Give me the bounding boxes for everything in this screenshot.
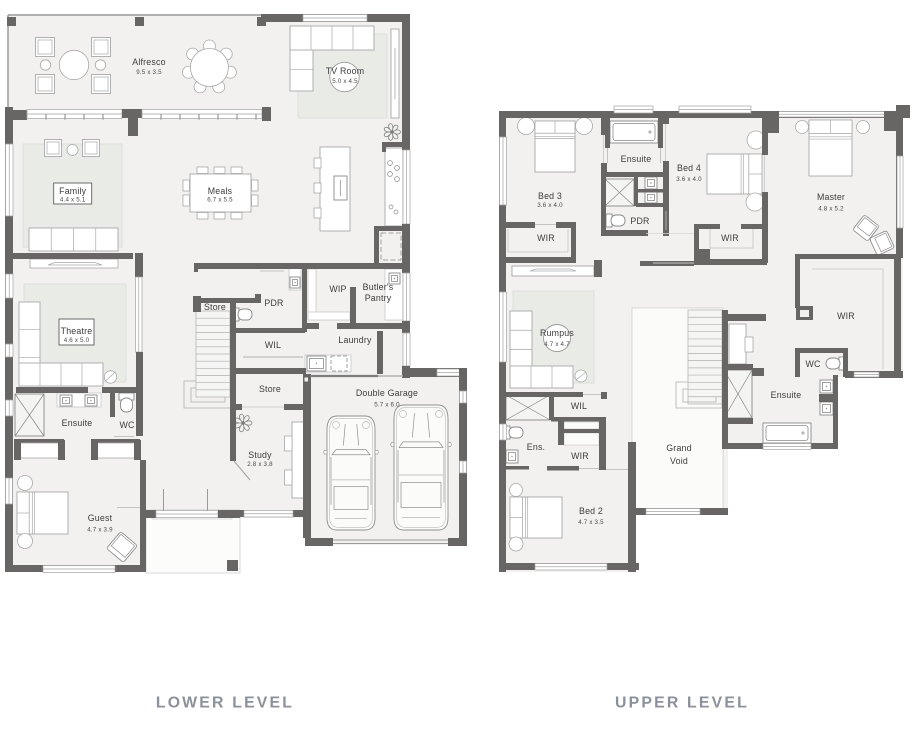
svg-text:WIL: WIL [571, 401, 587, 411]
svg-text:4.7 x 3.5: 4.7 x 3.5 [578, 519, 604, 526]
svg-text:UPPER LEVEL: UPPER LEVEL [615, 695, 749, 712]
svg-text:Void: Void [670, 456, 688, 466]
svg-text:Bed 2: Bed 2 [579, 506, 603, 516]
svg-text:WIR: WIR [837, 311, 855, 321]
svg-text:5.0 x 4.5: 5.0 x 4.5 [332, 78, 358, 85]
svg-text:Family: Family [59, 186, 87, 196]
svg-text:Alfresco: Alfresco [132, 57, 165, 67]
svg-text:PDR: PDR [630, 216, 649, 226]
svg-text:PDR: PDR [264, 298, 283, 308]
svg-text:Study: Study [248, 450, 272, 460]
svg-text:WIP: WIP [329, 284, 346, 294]
svg-text:2.8 x 3.8: 2.8 x 3.8 [247, 461, 273, 468]
svg-text:TV Room: TV Room [326, 66, 365, 76]
svg-text:Master: Master [817, 192, 845, 202]
svg-text:Butler's: Butler's [363, 282, 394, 292]
svg-text:WIR: WIR [721, 233, 739, 243]
svg-text:Pantry: Pantry [365, 293, 392, 303]
svg-text:WC: WC [119, 420, 135, 430]
svg-text:WIR: WIR [571, 451, 589, 461]
svg-text:Ensuite: Ensuite [621, 154, 652, 164]
svg-text:WIL: WIL [265, 340, 281, 350]
svg-text:Store: Store [204, 302, 226, 312]
svg-text:9.5 x 3.5: 9.5 x 3.5 [136, 69, 162, 76]
svg-text:Store: Store [259, 384, 281, 394]
svg-text:Rumpus: Rumpus [540, 328, 574, 338]
svg-text:5.7 x 6.0: 5.7 x 6.0 [374, 402, 400, 409]
svg-text:Guest: Guest [88, 513, 113, 523]
svg-text:Ens.: Ens. [527, 442, 545, 452]
svg-text:WIR: WIR [537, 233, 555, 243]
svg-text:Grand: Grand [666, 443, 691, 453]
svg-text:6.7 x 5.5: 6.7 x 5.5 [207, 197, 233, 204]
svg-text:4.7 x 3.9: 4.7 x 3.9 [87, 527, 113, 534]
svg-text:Ensuite: Ensuite [771, 390, 802, 400]
svg-text:WC: WC [805, 359, 821, 369]
svg-text:Ensuite: Ensuite [62, 418, 93, 428]
svg-text:Bed 3: Bed 3 [538, 191, 562, 201]
svg-text:Bed 4: Bed 4 [677, 163, 701, 173]
svg-text:Theatre: Theatre [61, 326, 93, 336]
svg-text:4.7 x 4.7: 4.7 x 4.7 [544, 341, 570, 348]
svg-text:3.6 x 4.0: 3.6 x 4.0 [676, 176, 702, 183]
svg-text:4.4 x 5.1: 4.4 x 5.1 [60, 196, 86, 203]
svg-text:3.6 x 4.0: 3.6 x 4.0 [537, 202, 563, 209]
svg-text:Meals: Meals [208, 186, 233, 196]
svg-text:LOWER LEVEL: LOWER LEVEL [156, 695, 294, 712]
svg-text:Double Garage: Double Garage [356, 388, 418, 398]
svg-text:Laundry: Laundry [338, 335, 372, 345]
svg-text:4.8 x 5.2: 4.8 x 5.2 [818, 206, 844, 213]
svg-text:4.6 x 5.0: 4.6 x 5.0 [64, 337, 90, 344]
